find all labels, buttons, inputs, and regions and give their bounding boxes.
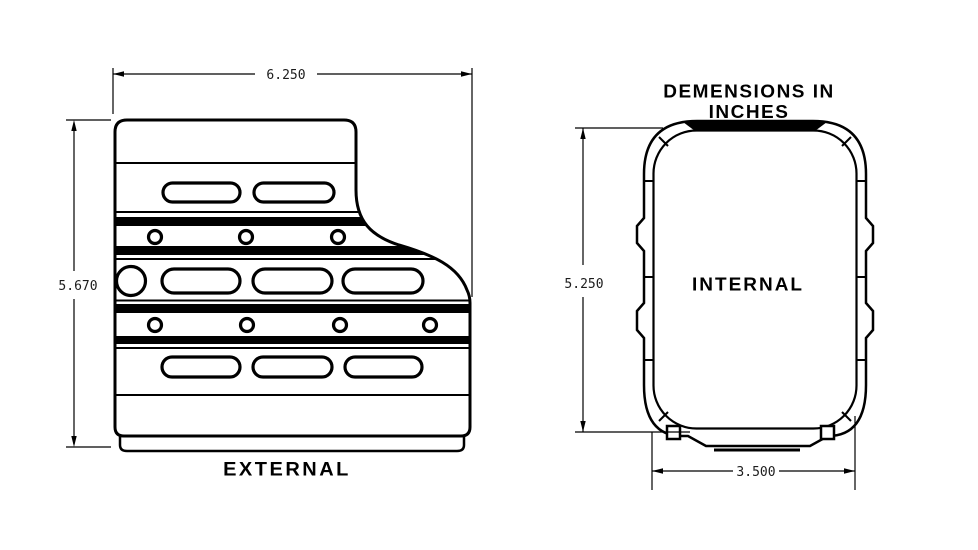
vent-slot: [163, 183, 240, 202]
screw-hole: [149, 231, 162, 244]
vent-slot: [345, 357, 422, 377]
vent-slot: [162, 269, 240, 293]
vent-slot-row-middle: [117, 267, 424, 296]
arrowhead: [461, 71, 472, 76]
dimension-text: 6.250: [266, 68, 305, 83]
dimension-text: 5.250: [564, 277, 603, 292]
rail-band: [115, 304, 470, 313]
dimension-external-height: 5.670: [58, 120, 111, 447]
screw-hole-row-upper: [149, 231, 345, 244]
external-surface-details: [115, 163, 470, 395]
screw-hole: [424, 319, 437, 332]
rail-band: [115, 217, 470, 226]
screw-hole: [240, 231, 253, 244]
vent-slot-row-bottom: [162, 357, 422, 377]
dimension-text: 3.500: [736, 465, 775, 480]
vent-slot-row-top: [163, 183, 334, 202]
arrowhead: [580, 421, 585, 432]
dimension-text: 5.670: [58, 279, 97, 294]
screw-hole: [241, 319, 254, 332]
external-foot: [120, 436, 464, 451]
vent-slot: [253, 357, 332, 377]
external-view-label: EXTERNAL: [187, 460, 387, 482]
vent-slot: [253, 269, 332, 293]
screw-hole: [149, 319, 162, 332]
external-view: [115, 120, 470, 451]
drawing-sheet: 6.250 5.670: [0, 0, 978, 550]
large-round-hole: [117, 267, 146, 296]
screw-hole-row-lower: [149, 319, 437, 332]
arrowhead: [844, 468, 855, 473]
arrowhead: [652, 468, 663, 473]
vent-slot: [254, 183, 334, 202]
vent-slot: [343, 269, 423, 293]
rail-band: [115, 336, 470, 344]
screw-hole: [334, 319, 347, 332]
internal-view-label: INTERNAL: [648, 276, 848, 297]
corner-hole: [821, 426, 834, 439]
sheet-title: DEMENSIONS IN INCHES: [623, 82, 875, 124]
arrowhead: [580, 128, 585, 139]
vent-slot: [162, 357, 240, 377]
arrowhead: [113, 71, 124, 76]
arrowhead: [71, 120, 76, 131]
screw-hole: [332, 231, 345, 244]
arrowhead: [71, 436, 76, 447]
